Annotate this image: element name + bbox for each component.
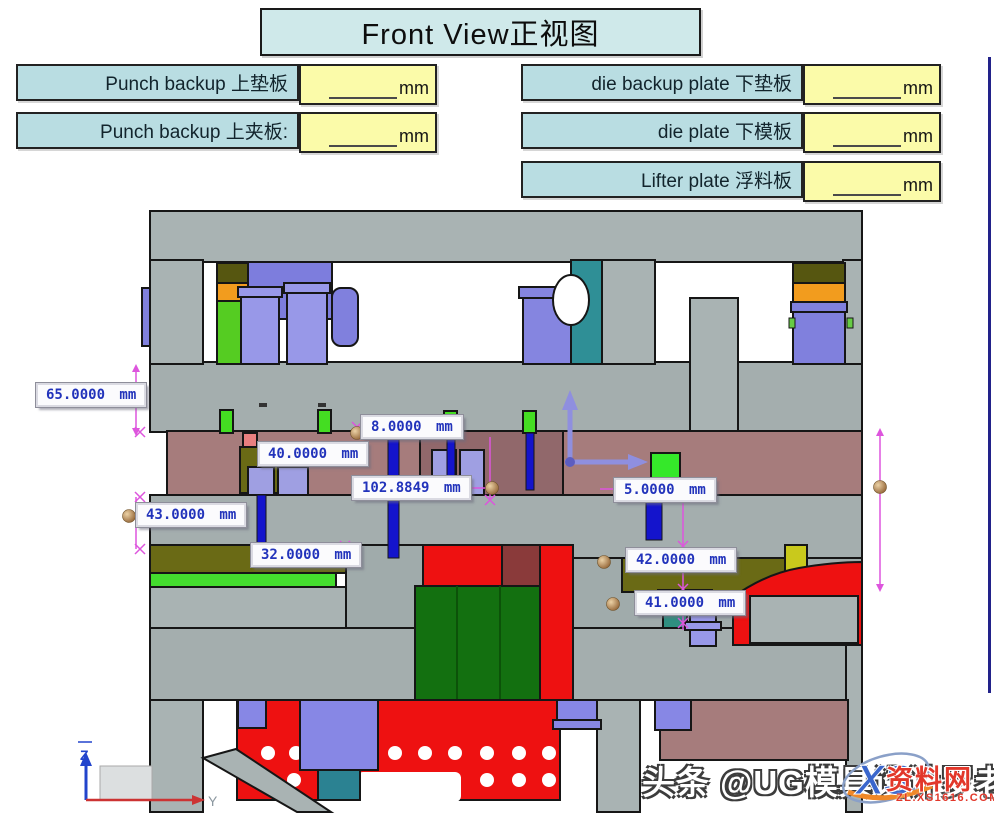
value-blank — [833, 83, 901, 99]
punch-backup-plate-value-field[interactable]: mm — [299, 64, 437, 105]
dim-label-42mm[interactable]: 42.0000 mm — [626, 548, 736, 572]
y-axis-label: Y — [208, 793, 218, 809]
value-blank — [833, 131, 901, 147]
dim-label-32mm[interactable]: 32.0000 mm — [251, 543, 361, 567]
dim-label-102mm[interactable]: 102.8849 mm — [352, 476, 471, 500]
label-punch-backup-plate: Punch backup 上垫板 — [16, 64, 299, 101]
value-blank — [833, 180, 901, 196]
dim-label-41mm[interactable]: 41.0000 mm — [635, 591, 745, 615]
label-die-plate: die plate 下模板 — [521, 112, 803, 149]
site-logo-url: ZL.XS1616.COM — [896, 792, 994, 804]
die-backup-plate-value-field[interactable]: mm — [803, 64, 941, 105]
dim-label-65mm[interactable]: 65.0000 mm — [36, 383, 146, 407]
dim-label-8mm[interactable]: 8.0000 mm — [361, 415, 463, 439]
dim-label-43mm[interactable]: 43.0000 mm — [136, 503, 246, 527]
label-punch-clamp-plate: Punch backup 上夹板: — [16, 112, 299, 149]
die-plate-value-field[interactable]: mm — [803, 112, 941, 153]
dim-label-5mm[interactable]: 5.0000 mm — [614, 478, 716, 502]
dim-label-40mm[interactable]: 40.0000 mm — [258, 442, 368, 466]
lifter-plate-value-field[interactable]: mm — [803, 161, 941, 202]
label-die-backup-plate: die backup plate 下垫板 — [521, 64, 803, 101]
view-title-text: Front View正视图 — [361, 11, 599, 53]
z-axis-label: Z — [80, 747, 89, 763]
right-border-line — [988, 57, 991, 693]
view-title: Front View正视图 — [260, 8, 701, 56]
value-blank — [329, 83, 397, 99]
site-logo: XS 资料网 ZL.XS1616.COM — [840, 740, 994, 814]
value-blank — [329, 131, 397, 147]
label-lifter-plate: Lifter plate 浮料板 — [521, 161, 803, 198]
punch-clamp-plate-value-field[interactable]: mm — [299, 112, 437, 153]
